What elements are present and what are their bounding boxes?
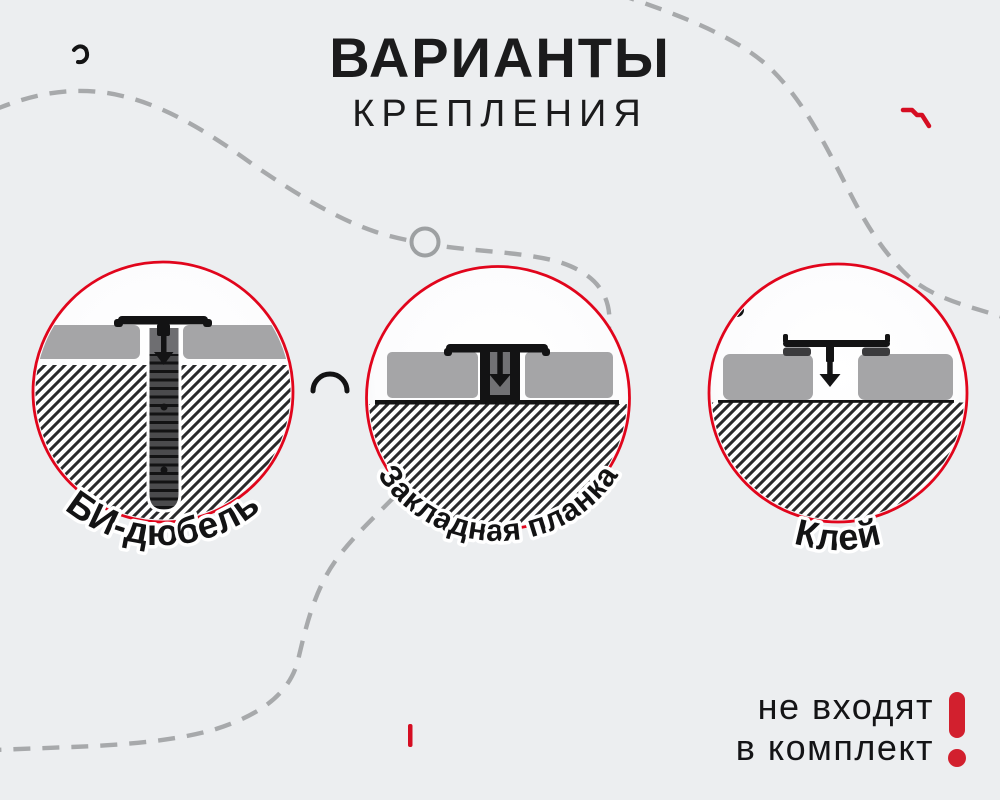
plank-top-bar <box>446 344 548 353</box>
note-line2: в комплект <box>736 727 934 768</box>
red-tick-icon <box>408 724 413 747</box>
note-text: не входят в комплект <box>736 686 934 768</box>
panel-right <box>858 354 953 400</box>
glue-pad-right <box>862 348 890 357</box>
exclamation-icon <box>947 692 967 774</box>
infographic-mounting-options: ВАРИАНТЫ КРЕПЛЕНИЯ <box>0 0 1000 800</box>
page-header: ВАРИАНТЫ КРЕПЛЕНИЯ <box>0 30 1000 133</box>
dowel-cap <box>118 316 208 325</box>
profile-top-bar <box>783 340 890 347</box>
figure-glue: Клей <box>692 252 1000 592</box>
floor-line <box>718 400 954 403</box>
figure-bi-dowel: БИ-дюбель <box>10 250 330 585</box>
glue-pad-left <box>783 348 811 357</box>
figure-embedded-plank: Закладная планка <box>350 252 670 592</box>
note-line1: не входят <box>736 686 934 727</box>
panel-left <box>387 352 478 398</box>
panel-right <box>525 352 613 398</box>
not-included-note: не входят в комплект <box>736 686 967 774</box>
panel-left <box>723 354 813 400</box>
option-label-glue: Клей <box>791 511 884 558</box>
page-subtitle: КРЕПЛЕНИЯ <box>0 95 1000 133</box>
page-title: ВАРИАНТЫ <box>0 30 1000 86</box>
